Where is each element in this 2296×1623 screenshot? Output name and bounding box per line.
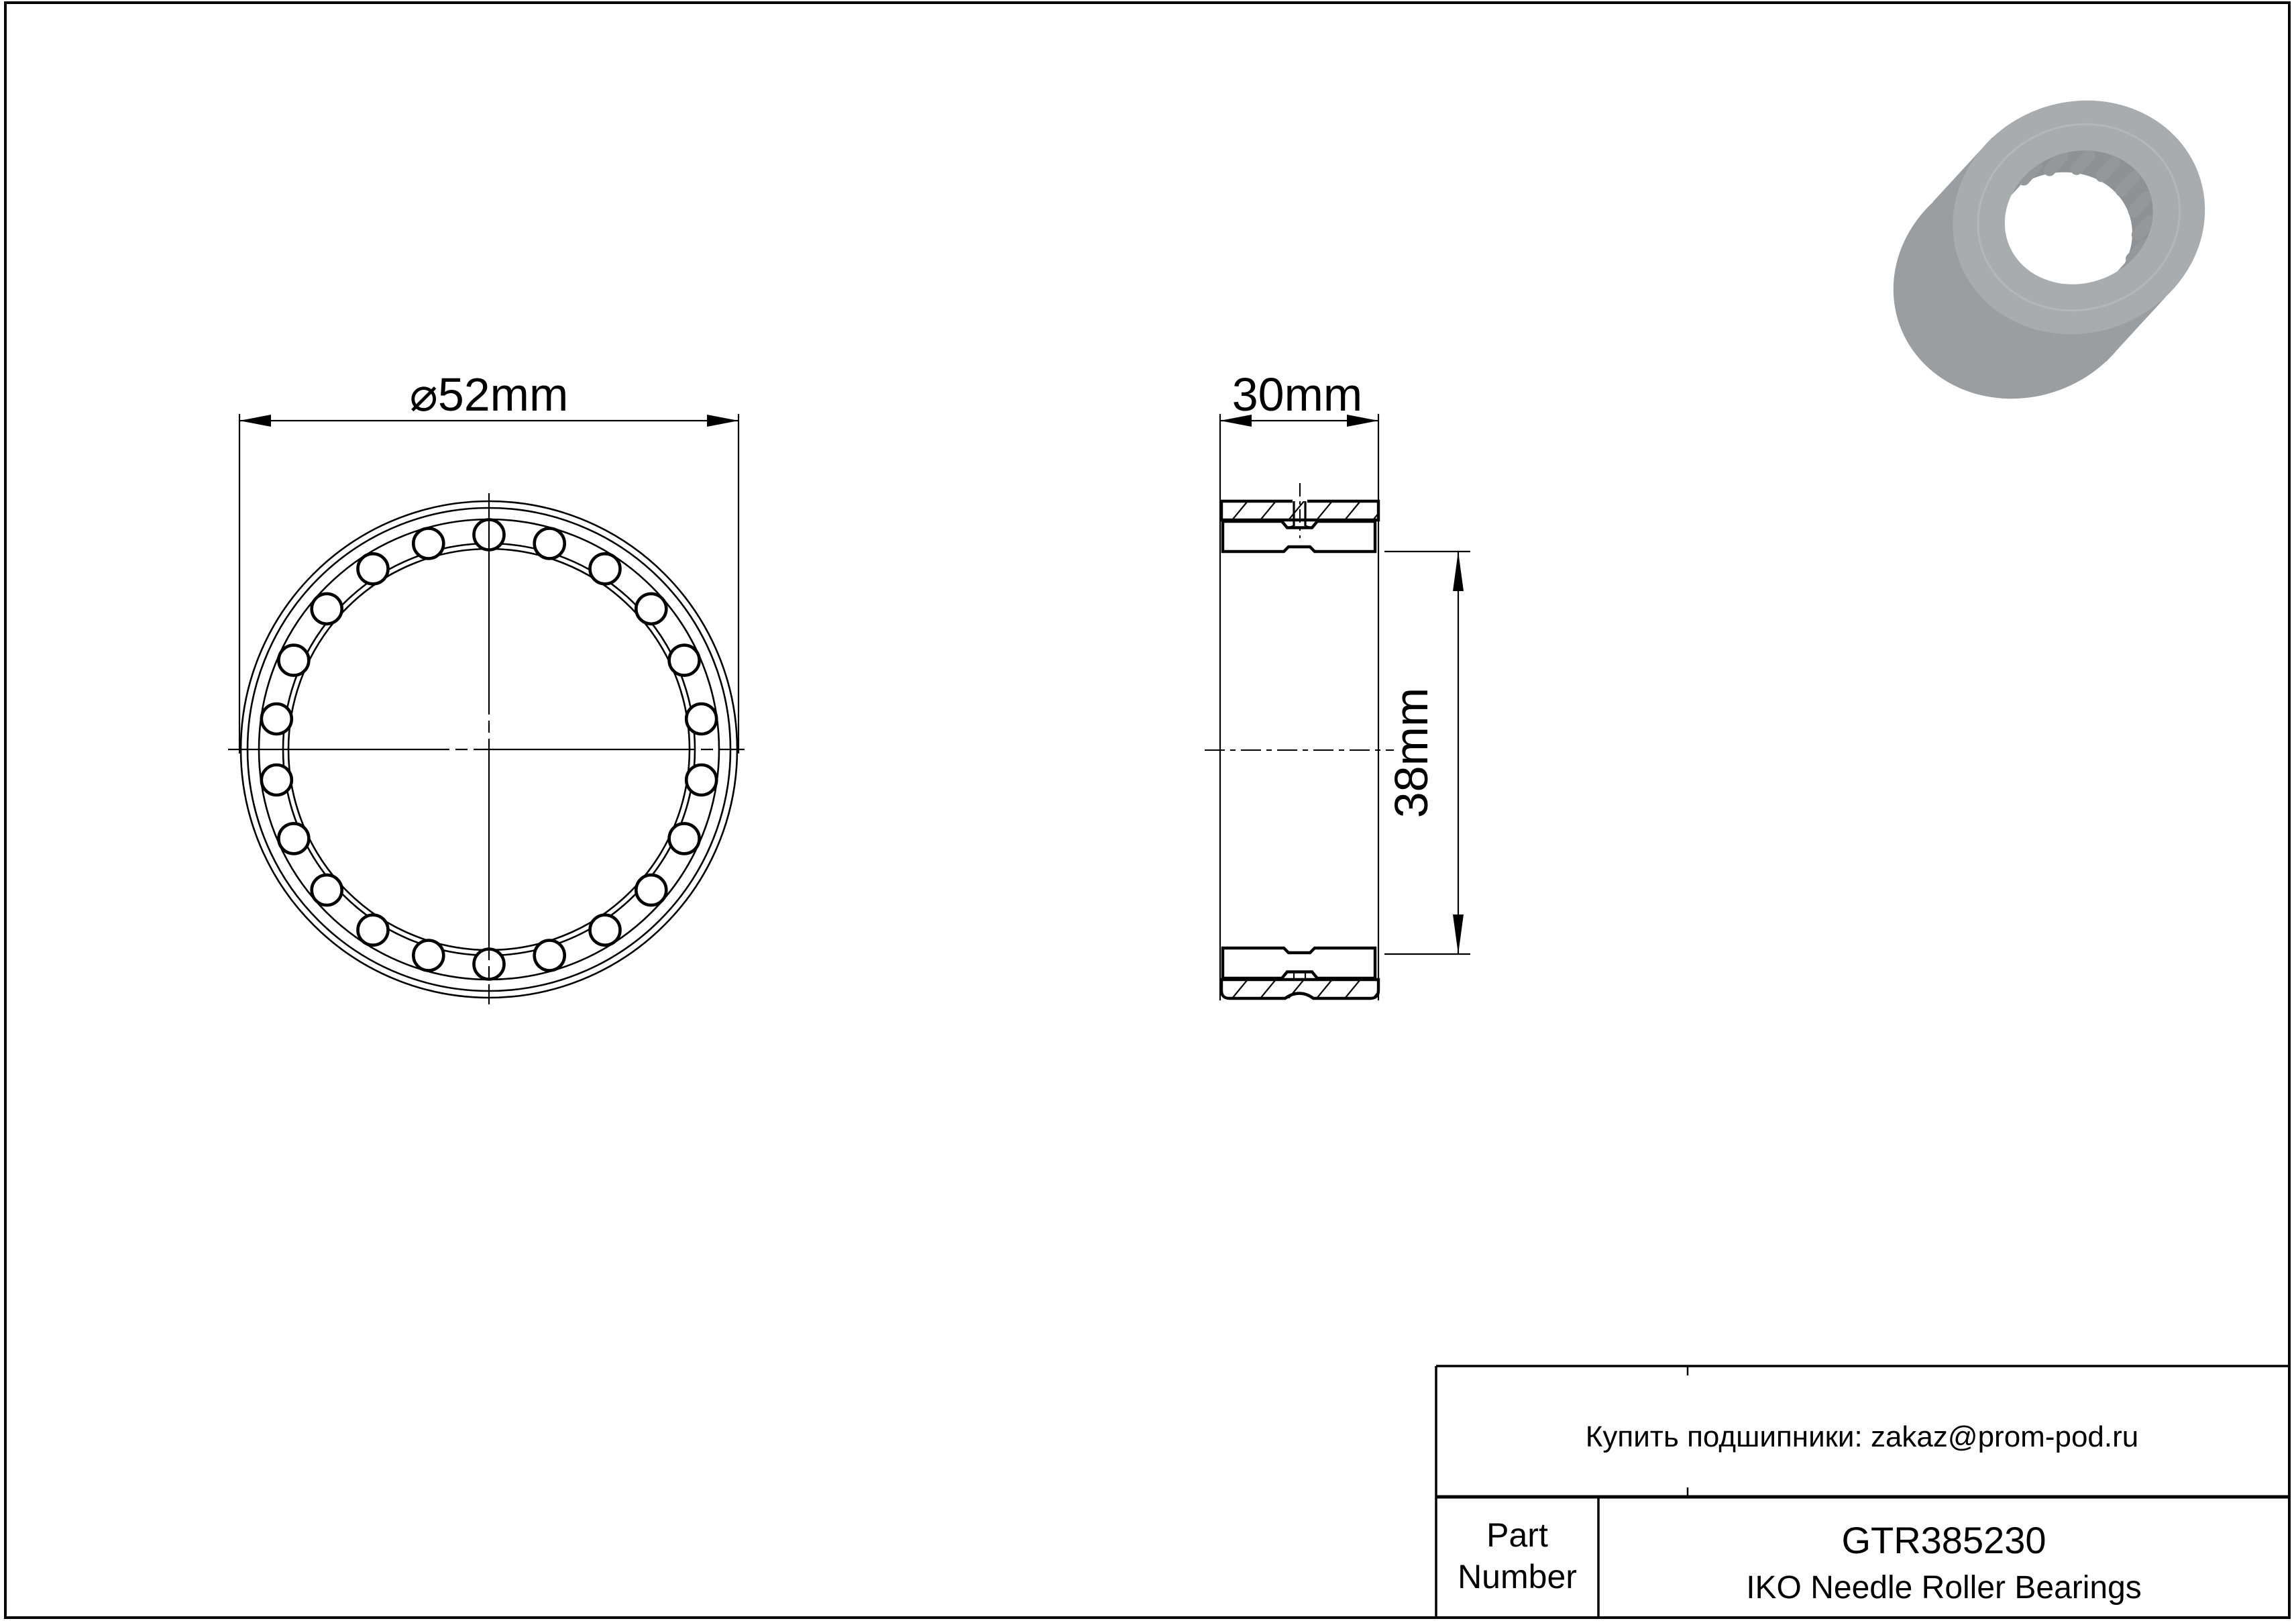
bearing-technical-drawing: ⌀52mm — [0, 0, 2296, 1623]
roller-section-bottom — [1223, 948, 1375, 978]
section-view: 30mm 38mm — [1204, 368, 1470, 1000]
dimension-width: 30mm — [1220, 368, 1378, 427]
part-number-value: GTR385230 — [1841, 1519, 2046, 1561]
roller-section-top — [1223, 521, 1375, 552]
centerlines — [228, 493, 745, 1004]
part-number-label-line1: Part — [1486, 1516, 1548, 1554]
front-view: ⌀52mm — [228, 368, 745, 1004]
bearing-3d-render — [1847, 65, 2252, 433]
bore-label: 38mm — [1385, 688, 1437, 818]
title-block: Купить подшипники: zakaz@prom-pod.ru Par… — [1436, 1366, 2291, 1619]
contact-line: Купить подшипники: zakaz@prom-pod.ru — [1586, 1420, 2138, 1453]
dimension-bore: 38mm — [1384, 552, 1470, 954]
drawing-page: ⌀52mm — [0, 0, 2296, 1623]
hatch-bottom — [1204, 980, 1388, 998]
hatch-top — [1204, 501, 1388, 520]
part-number-label-line2: Number — [1458, 1558, 1577, 1595]
outer-diameter-label: ⌀52mm — [410, 368, 569, 421]
width-label: 30mm — [1232, 368, 1362, 421]
product-line: IKO Needle Roller Bearings — [1746, 1570, 2142, 1606]
